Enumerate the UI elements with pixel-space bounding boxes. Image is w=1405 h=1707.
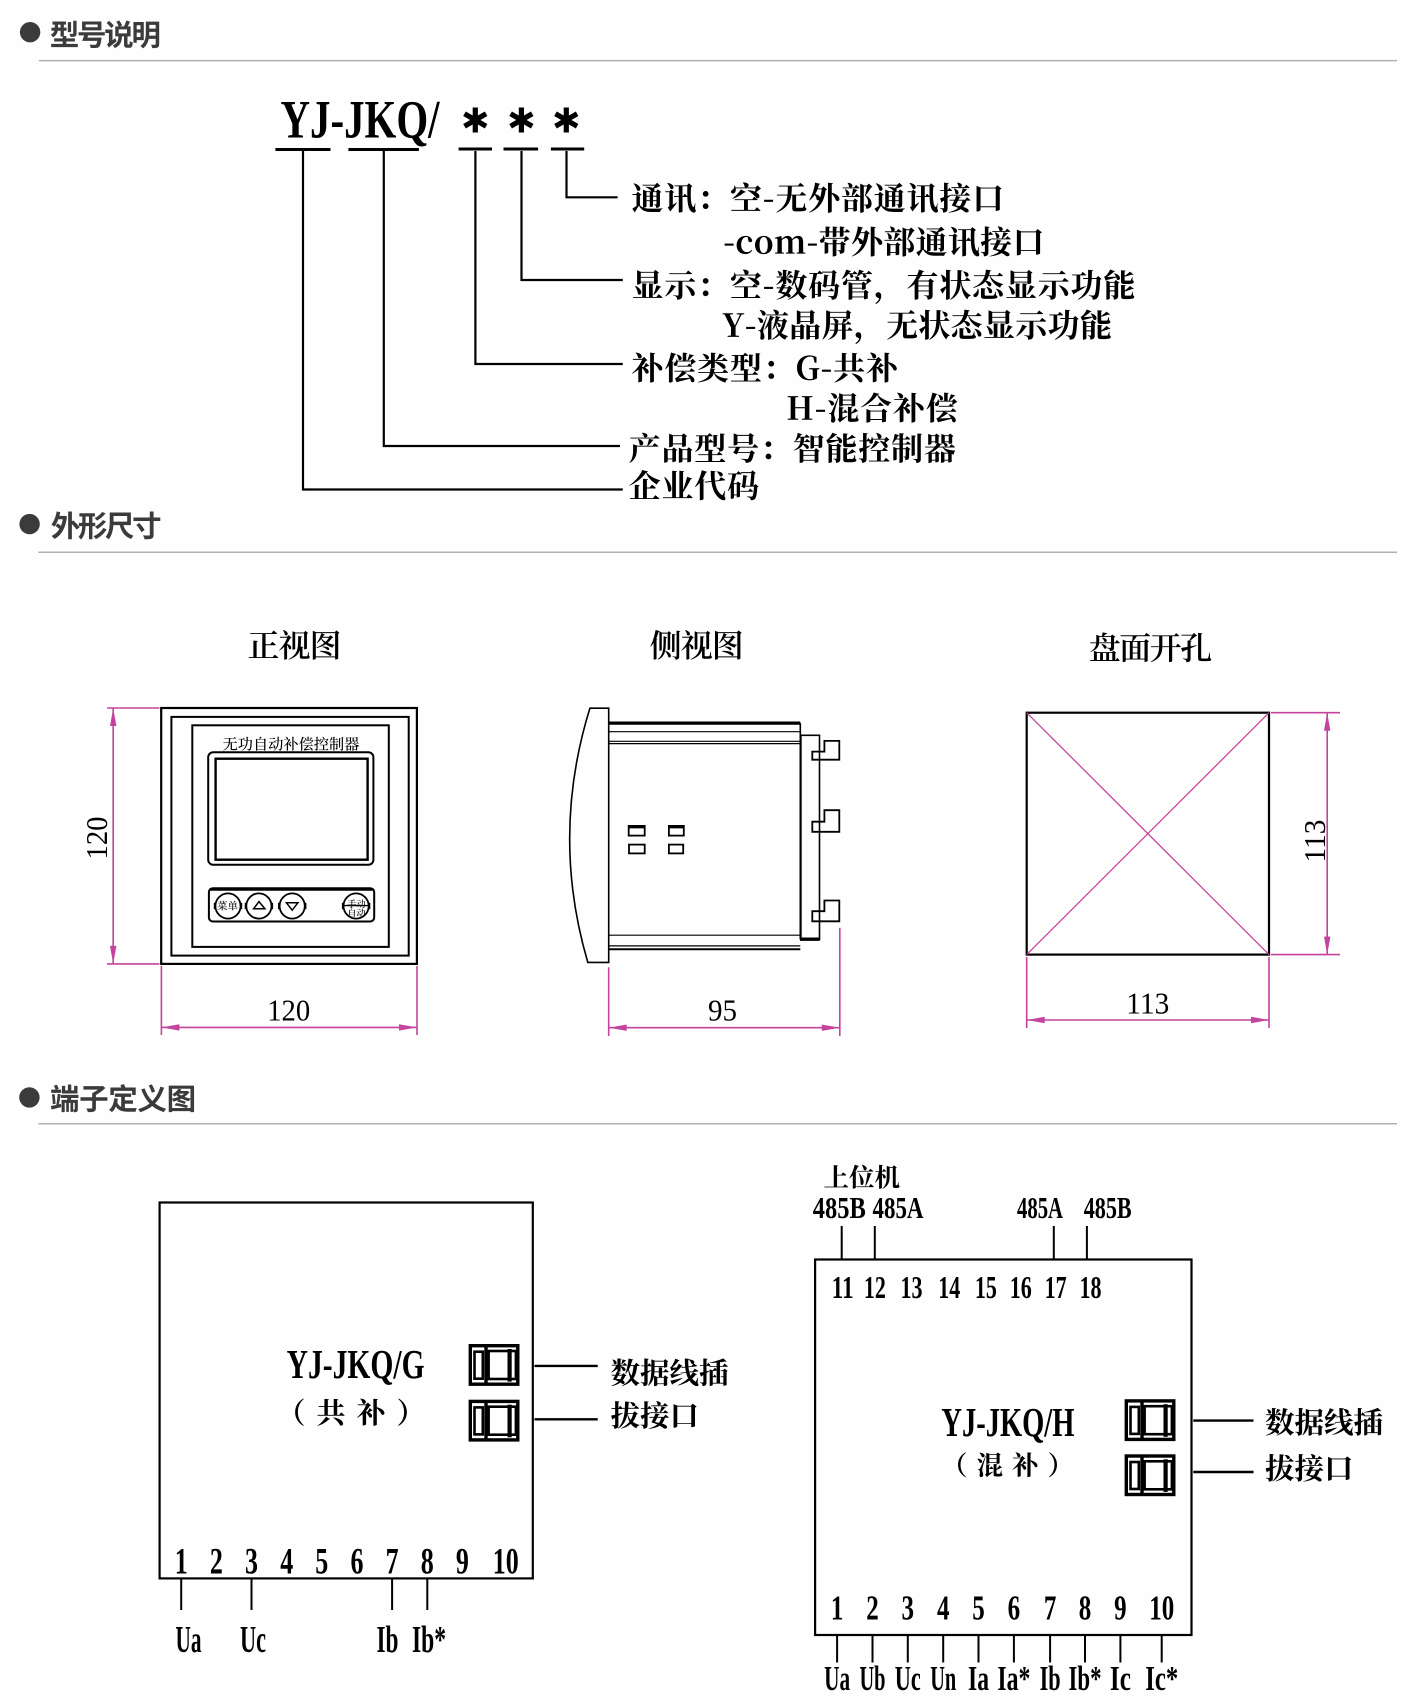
svg-text:9: 9: [456, 1542, 469, 1583]
svg-text:Un: Un: [930, 1659, 956, 1698]
svg-text:Ib: Ib: [377, 1619, 399, 1661]
svg-text:Uc: Uc: [240, 1619, 266, 1661]
svg-text:5: 5: [315, 1542, 328, 1583]
svg-text:485B: 485B: [1084, 1190, 1132, 1225]
svg-text:12: 12: [864, 1270, 886, 1305]
svg-text:7: 7: [386, 1542, 399, 1583]
svg-text:Ia*: Ia*: [997, 1659, 1030, 1698]
svg-text:1: 1: [831, 1589, 844, 1628]
svg-text:16: 16: [1010, 1270, 1032, 1305]
svg-text:Ua: Ua: [824, 1659, 850, 1698]
svg-text:10: 10: [1149, 1589, 1174, 1628]
svg-text:Ib*: Ib*: [1069, 1659, 1102, 1698]
svg-text:YJ-JKQ/H: YJ-JKQ/H: [941, 1399, 1074, 1445]
svg-text:Uc: Uc: [895, 1659, 921, 1698]
svg-text:Ic*: Ic*: [1145, 1659, 1178, 1698]
svg-text:7: 7: [1044, 1589, 1057, 1628]
svg-text:3: 3: [245, 1542, 258, 1583]
svg-text:95: 95: [708, 992, 737, 1027]
svg-text:113: 113: [1126, 986, 1169, 1021]
svg-text:6: 6: [351, 1542, 364, 1583]
svg-text:10: 10: [493, 1542, 519, 1583]
svg-text:Ua: Ua: [176, 1619, 202, 1661]
svg-text:4: 4: [937, 1589, 950, 1628]
svg-text:2: 2: [210, 1542, 223, 1583]
svg-text:6: 6: [1008, 1589, 1021, 1628]
svg-text:2: 2: [866, 1589, 879, 1628]
svg-text:11: 11: [832, 1270, 854, 1305]
svg-text:120: 120: [79, 817, 114, 860]
svg-text:Ib*: Ib*: [412, 1619, 446, 1661]
svg-text:YJ-JKQ/: YJ-JKQ/: [281, 89, 441, 149]
svg-text:3: 3: [902, 1589, 915, 1628]
svg-text:YJ-JKQ/G: YJ-JKQ/G: [287, 1341, 425, 1387]
svg-text:485A: 485A: [873, 1190, 924, 1225]
svg-text:8: 8: [1079, 1589, 1092, 1628]
svg-text:Ia: Ia: [968, 1659, 989, 1698]
svg-text:Ic: Ic: [1110, 1659, 1131, 1698]
svg-text:Ub: Ub: [860, 1659, 886, 1698]
svg-text:13: 13: [901, 1270, 923, 1305]
svg-text:9: 9: [1114, 1589, 1127, 1628]
svg-text:Ib: Ib: [1040, 1659, 1061, 1698]
svg-text:4: 4: [280, 1542, 293, 1583]
svg-text:485A: 485A: [1017, 1190, 1063, 1225]
svg-text:8: 8: [421, 1542, 434, 1583]
svg-text:15: 15: [975, 1270, 997, 1305]
svg-text:485B: 485B: [813, 1190, 866, 1225]
svg-text:113: 113: [1297, 820, 1332, 863]
svg-text:14: 14: [938, 1270, 960, 1305]
svg-text:1: 1: [175, 1542, 188, 1583]
svg-text:18: 18: [1080, 1270, 1102, 1305]
svg-text:17: 17: [1045, 1270, 1067, 1305]
svg-text:120: 120: [267, 992, 310, 1027]
svg-text:5: 5: [972, 1589, 985, 1628]
